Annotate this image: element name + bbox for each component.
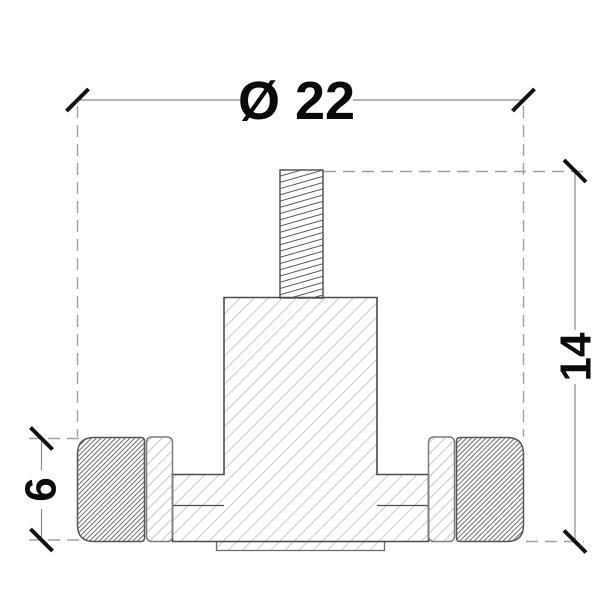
left-washer	[147, 437, 173, 542]
dimension-thickness: 6	[17, 428, 66, 552]
dim-value-height: 14	[552, 332, 600, 381]
threaded-stud	[280, 170, 323, 298]
dimension-height: 14	[552, 160, 600, 553]
part-cross-section	[78, 170, 524, 551]
technical-drawing: Ø 22 14 6	[0, 0, 600, 600]
drawing-canvas: Ø 22 14 6	[0, 0, 600, 600]
bottom-plate	[217, 542, 385, 551]
left-gasket	[78, 438, 145, 542]
dim-value-diameter: Ø 22	[238, 71, 355, 131]
right-gasket	[457, 438, 524, 542]
dimension-diameter: Ø 22	[67, 71, 535, 131]
right-washer	[429, 437, 455, 542]
dim-value-thickness: 6	[17, 477, 66, 501]
